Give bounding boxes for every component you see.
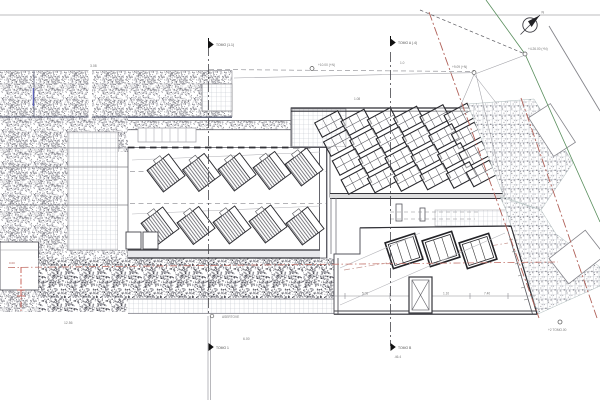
svg-text:+9.09 (+N): +9.09 (+N) xyxy=(452,65,467,69)
svg-text:TOMO (1.1): TOMO (1.1) xyxy=(216,43,234,47)
svg-text:+10.00 (+N): +10.00 (+N) xyxy=(318,63,335,67)
svg-text:TOMO A (.4): TOMO A (.4) xyxy=(398,41,417,45)
svg-text:3.08: 3.08 xyxy=(90,64,97,68)
svg-text:0.00: 0.00 xyxy=(9,261,15,265)
svg-text:+2 TOMO.00: +2 TOMO.00 xyxy=(548,328,567,332)
svg-text:ASERTOVE: ASERTOVE xyxy=(222,315,239,319)
svg-text:1.08: 1.08 xyxy=(354,97,360,101)
svg-text:1.0: 1.0 xyxy=(400,61,405,65)
svg-text:1.10: 1.10 xyxy=(443,292,449,296)
svg-text:TOMO B: TOMO B xyxy=(398,346,412,350)
svg-text:7.40: 7.40 xyxy=(484,292,490,296)
svg-text:12.56: 12.56 xyxy=(64,321,73,325)
svg-text:.46.4: .46.4 xyxy=(394,355,401,359)
svg-text:6.00: 6.00 xyxy=(243,337,250,341)
svg-text:TOMO 1: TOMO 1 xyxy=(216,346,229,350)
svg-text:+4.26.00 (+N): +4.26.00 (+N) xyxy=(528,47,548,51)
